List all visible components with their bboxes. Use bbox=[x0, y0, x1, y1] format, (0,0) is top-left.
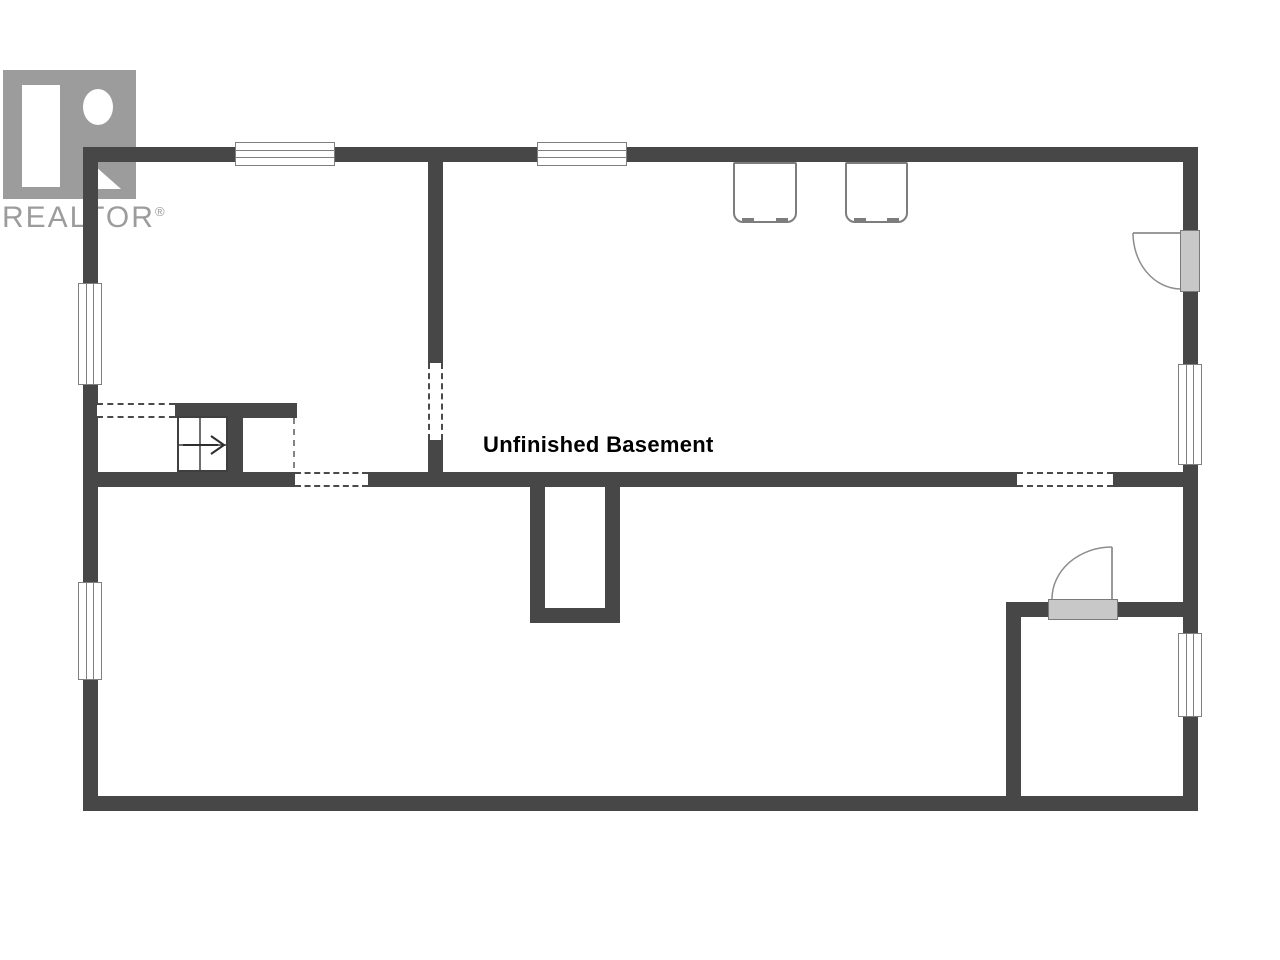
appliance-foot bbox=[776, 218, 788, 222]
registered-trademark-symbol: ® bbox=[155, 204, 165, 219]
realtor-logo-mark bbox=[3, 70, 136, 199]
window-right-upper bbox=[1178, 364, 1202, 465]
realtor-r-counter-bowl bbox=[83, 89, 113, 125]
window-top-center bbox=[537, 142, 627, 166]
opening-middle-wall-left bbox=[295, 472, 368, 487]
window-right-lower bbox=[1178, 633, 1202, 717]
room-label: Unfinished Basement bbox=[483, 432, 714, 458]
appliance-left bbox=[733, 162, 797, 223]
window-top-left bbox=[235, 142, 335, 166]
door-bottom-right-room bbox=[1048, 599, 1118, 620]
window-left-upper bbox=[78, 283, 102, 385]
appliance-foot bbox=[887, 218, 899, 222]
wall-exterior-bottom bbox=[83, 796, 1198, 811]
realtor-brand: REALTOR bbox=[2, 201, 155, 234]
appliance-foot bbox=[742, 218, 754, 222]
realtor-r-counter-bar bbox=[22, 85, 60, 187]
door-swing-top-right bbox=[1133, 233, 1180, 289]
wall-stairwell-bay-left bbox=[530, 487, 545, 623]
floorplan-canvas: REALTOR® bbox=[0, 0, 1280, 960]
door-exterior-right bbox=[1180, 230, 1200, 292]
appliance-foot bbox=[854, 218, 866, 222]
opening-interior-wall bbox=[428, 363, 443, 440]
opening-closet-top bbox=[97, 403, 175, 418]
door-swing-bottom-right bbox=[1052, 547, 1112, 599]
appliance-right bbox=[845, 162, 908, 223]
wall-stairwell-bay-bottom bbox=[530, 608, 620, 623]
wall-stairwell-bay-right bbox=[605, 487, 620, 623]
wall-bottom-right-room-left bbox=[1006, 602, 1021, 811]
window-left-lower bbox=[78, 582, 102, 680]
opening-middle-wall-right bbox=[1017, 472, 1113, 487]
staircase bbox=[177, 416, 228, 472]
wall-stair-enclosure-right bbox=[228, 418, 243, 472]
